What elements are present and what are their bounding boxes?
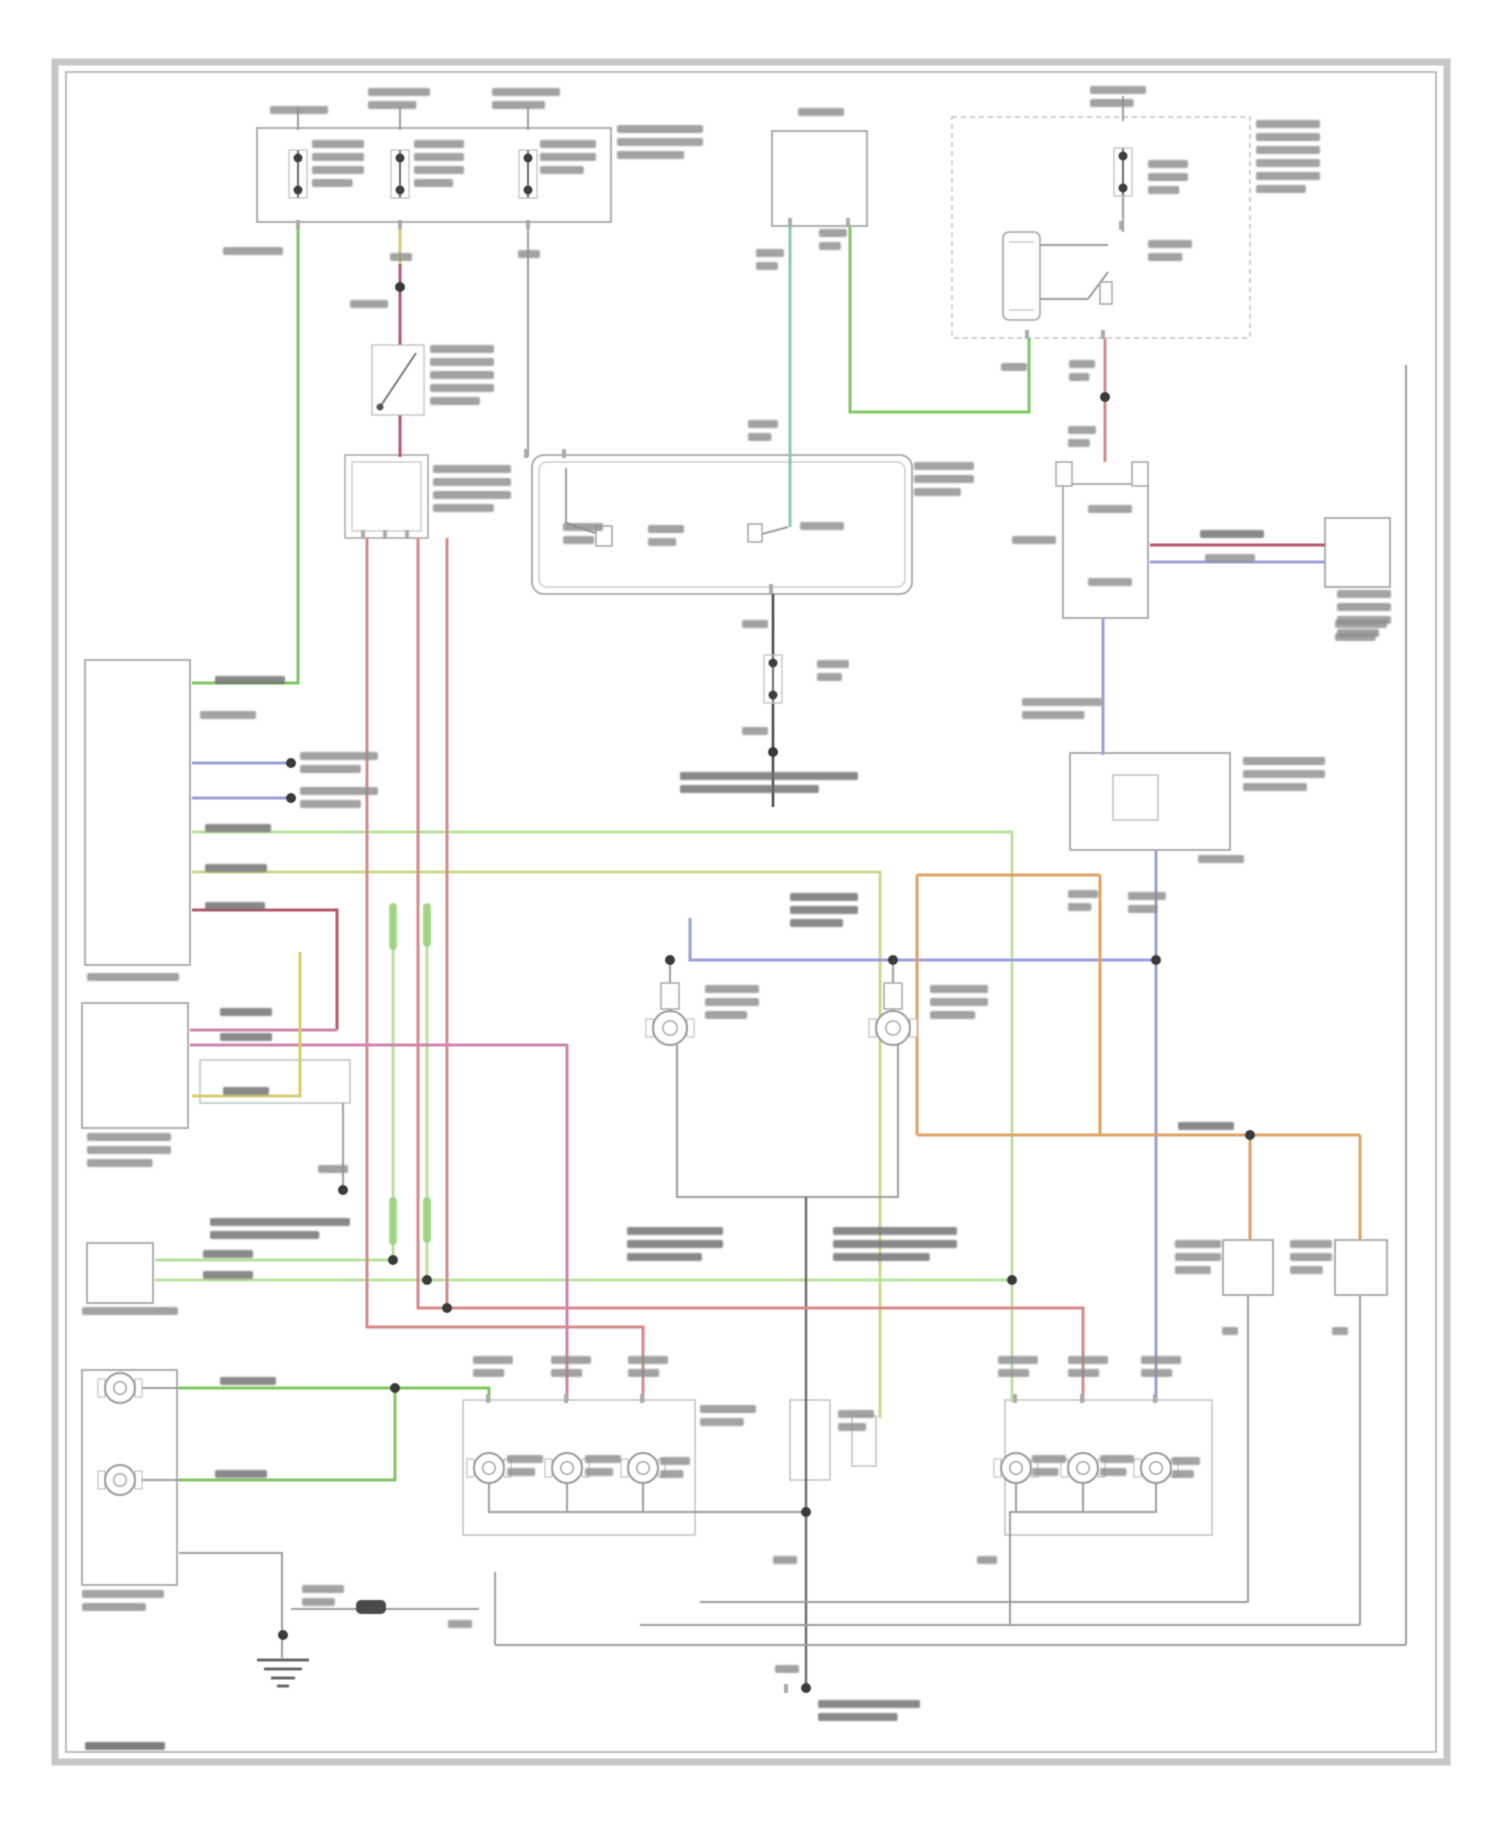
label-stub-fuse3-side-label — [540, 166, 584, 174]
label-stub-conn-text — [210, 1231, 319, 1239]
label-stub-license2-label — [930, 1011, 975, 1019]
label-stub-blue-down-label — [1022, 711, 1084, 719]
label-stub-fuse1-side-label — [312, 140, 364, 148]
label-stub-fuse2-side-label — [414, 140, 464, 148]
junction-dot — [1245, 1130, 1255, 1140]
label-stub-module-caption — [87, 973, 179, 981]
label-stub-license2-caption — [833, 1240, 957, 1248]
label-stub-blue1-label — [300, 752, 378, 760]
label-stub-rl-lamp1-label — [507, 1468, 535, 1476]
front-lamp-2-bulb-icon — [105, 1465, 135, 1495]
label-stub-maroon-label — [205, 902, 265, 910]
connector-box-below-switch — [345, 455, 428, 538]
label-stub-fuse3-top-label — [492, 88, 560, 96]
label-stub-bus-label — [448, 1620, 472, 1628]
front-lamp-2-tab — [135, 1471, 142, 1489]
label-stub-green-wire-label — [819, 242, 841, 250]
fuse-4-terminal-dot — [1119, 152, 1128, 161]
label-stub-righttall-label — [1335, 633, 1376, 641]
label-stub-license1-caption — [627, 1253, 702, 1261]
relay-coil-symbol — [1003, 232, 1040, 320]
fuse-3-terminal-dot — [524, 154, 533, 163]
label-stub-rr-wire3-label — [1141, 1369, 1172, 1377]
junction-dot — [665, 955, 675, 965]
label-stub-license1-label — [705, 1011, 747, 1019]
label-stub-license1-caption — [627, 1240, 723, 1248]
label-stub-rl-wire2-label — [551, 1356, 591, 1364]
label-stub-license2-caption — [833, 1253, 930, 1261]
green-sleeve-capsule — [389, 903, 397, 950]
junction-dot — [801, 1683, 811, 1693]
label-stub-switch2-label — [800, 522, 844, 530]
label-stub-orange-label-1 — [1068, 903, 1091, 911]
junction-dot — [286, 758, 296, 768]
module-inner-glyph — [1113, 775, 1158, 820]
label-stub-pink1-label — [220, 1008, 272, 1016]
label-stub-green-wire-label — [819, 229, 847, 237]
label-stub-teal-mid-label — [748, 420, 778, 428]
label-stub-rl-lamp2-label — [585, 1455, 621, 1463]
label-stub-switch1-label-a — [563, 523, 603, 531]
junction-dot — [286, 793, 296, 803]
label-stub-center-conn-label — [700, 1418, 744, 1426]
fuse-center-terminal-dot — [769, 691, 778, 700]
label-stub-junction-text — [680, 772, 858, 780]
label-stub-ignition-switch-label — [430, 384, 494, 392]
label-stub-rr-lamp3-label — [1172, 1470, 1194, 1478]
label-stub-marker2-tick — [1332, 1327, 1348, 1335]
label-stub-ground-text — [818, 1713, 898, 1721]
label-stub-dashedbox-right-label — [1256, 133, 1320, 141]
label-stub-gnd-vert-label-1 — [773, 1556, 797, 1564]
label-stub-fuse2-top-label — [368, 88, 430, 96]
fuse-1-terminal-dot — [294, 186, 303, 195]
label-stub-farright-caption — [1337, 590, 1391, 598]
label-stub-dashedbox-top-label — [1090, 86, 1146, 94]
rear-left-lamp-3-tab — [621, 1459, 628, 1477]
label-stub-rl-lamp1-label — [507, 1455, 543, 1463]
connector-tick — [784, 1684, 788, 1693]
connector-tick — [398, 220, 402, 229]
label-stub-red-stub-label-2 — [1068, 426, 1096, 434]
label-stub-center-conn-label — [700, 1405, 756, 1413]
label-stub-marker2-label — [1290, 1253, 1332, 1261]
label-stub-center-small-label — [838, 1423, 866, 1431]
label-stub-rl-lamp3-label — [660, 1470, 683, 1478]
label-stub-relay-coil-label — [1148, 240, 1192, 248]
marker-lamp-box-1 — [1223, 1240, 1273, 1295]
junction-dot — [888, 955, 898, 965]
label-stub-dashedbox-right-label — [1256, 159, 1320, 167]
label-stub-ignition-switch-label — [430, 345, 494, 353]
label-stub-box-right-mid-label — [914, 488, 961, 496]
label-stub-combo-switch-label — [433, 478, 511, 486]
label-stub-block-caption — [790, 919, 843, 927]
label-stub-fuse4-label — [1148, 160, 1188, 168]
label-stub-relay-coil-label — [1148, 253, 1182, 261]
label-stub-fusebox-right-label — [617, 151, 684, 159]
junction-dot — [395, 282, 405, 292]
label-stub-fuse3-top-label — [492, 101, 545, 109]
rear-right-lamp-2-bulb-icon — [1068, 1453, 1098, 1483]
label-stub-green-long-label — [205, 824, 271, 832]
rear-right-lamp-1-bulb-icon — [1001, 1453, 1031, 1483]
label-stub-rl-wire3-label — [628, 1356, 668, 1364]
inline-connector-blob — [356, 1600, 386, 1614]
rear-left-lamp-2-tab — [545, 1459, 552, 1477]
label-stub-license2-caption — [833, 1227, 957, 1235]
footer-caption-stub — [85, 1742, 165, 1750]
label-stub-module2-caption — [87, 1159, 153, 1167]
connector-tick — [1013, 1394, 1017, 1403]
label-stub-conn-text — [210, 1218, 350, 1226]
label-stub-rr-lamp3-label — [1172, 1457, 1200, 1465]
junction-dot — [388, 1255, 398, 1265]
label-stub-gnd-chain-label — [302, 1585, 344, 1593]
label-stub-rr-wire2-label — [1068, 1356, 1108, 1364]
label-stub-block-caption — [790, 893, 858, 901]
label-stub-stub2-label — [200, 711, 256, 719]
connector-tick — [524, 449, 528, 458]
connector-tick — [361, 530, 365, 539]
label-stub-centerfuse-top-label — [742, 620, 768, 628]
label-stub-fuse2-side-label — [414, 153, 464, 161]
connector-tick — [1101, 330, 1105, 339]
label-stub-blue-below-label — [1128, 905, 1158, 913]
label-stub-dashedbox-top-label — [1090, 99, 1134, 107]
label-stub-combo-switch-label — [433, 504, 494, 512]
label-stub-ground-text — [818, 1700, 920, 1708]
label-stub-yellowgreen-label — [205, 864, 267, 872]
label-stub-centerfuse-label — [817, 673, 842, 681]
connector-tick — [564, 1394, 568, 1403]
label-stub-fuse1-side-label — [312, 166, 364, 174]
rear-right-lamp-3-tab — [1134, 1459, 1141, 1477]
label-stub-orange-label-2 — [1178, 1122, 1234, 1130]
label-stub-yellow-label — [223, 1087, 269, 1095]
label-stub-ignition-switch-label — [430, 397, 480, 405]
license-lamp-1-bulb-icon — [653, 1011, 687, 1045]
license-lamp-2-tab — [869, 1019, 876, 1037]
label-stub-green-stub-label — [1001, 363, 1027, 371]
dashed-box-top-right — [952, 117, 1250, 338]
label-stub-box-right-mid-label — [914, 462, 974, 470]
label-stub-blue2-label — [300, 800, 361, 808]
fuse-2-terminal-dot — [396, 186, 405, 195]
connector-pin — [748, 524, 762, 542]
label-stub-rl-wire1-label — [473, 1356, 513, 1364]
label-stub-rl-wire1-label — [473, 1369, 504, 1377]
connector-tick — [640, 1394, 644, 1403]
label-stub-red-stub-label-1 — [1069, 360, 1095, 368]
label-stub-rr-wire1-label — [998, 1369, 1029, 1377]
label-stub-rr-lamp1-label — [1032, 1468, 1059, 1476]
connector-tick — [383, 530, 387, 539]
connector-tick — [296, 220, 300, 229]
label-stub-frontbox-caption — [82, 1603, 146, 1611]
junction-dot — [422, 1275, 432, 1285]
label-stub-blue1-label — [300, 765, 361, 773]
label-stub-right-module-label — [1243, 770, 1325, 778]
fuse-2-terminal-dot — [396, 154, 405, 163]
junction-dot — [1007, 1275, 1017, 1285]
front-lamp-1-tab — [135, 1379, 142, 1397]
label-stub-dashedbox-right-label — [1256, 185, 1306, 193]
fuse-1-terminal-dot — [294, 154, 303, 163]
rear-left-lamp-1-tab — [467, 1459, 474, 1477]
label-stub-fuse1-side-label — [312, 179, 353, 187]
label-stub-combo-switch-label — [433, 491, 511, 499]
label-stub-marker2-label — [1290, 1240, 1332, 1248]
label-stub-fusebox-right-label — [617, 138, 703, 146]
connector-tick — [846, 218, 850, 227]
fuse-4-terminal-dot — [1119, 184, 1128, 193]
label-stub-frontlamp-green1-label — [220, 1377, 276, 1385]
front-lamp-1-tab — [98, 1379, 105, 1397]
label-stub-ignition-switch-label — [430, 358, 494, 366]
license-lamp-2-connector-pin — [884, 983, 902, 1009]
license-lamp-1-tab — [646, 1019, 653, 1037]
connector-tick — [788, 218, 792, 227]
wiring-diagram-canvas — [0, 0, 1500, 1828]
junction-dot — [442, 1303, 452, 1313]
label-stub-red-stub-label-1 — [1069, 373, 1089, 381]
label-stub-dashedbox-right-label — [1256, 120, 1320, 128]
label-stub-orange-label-1 — [1068, 890, 1098, 898]
label-stub-rl-wire3-label — [628, 1369, 659, 1377]
rear-right-lamp-3-bulb-icon — [1141, 1453, 1171, 1483]
license-lamp-2-bulb-icon — [876, 1011, 910, 1045]
label-stub-frontlamp-green2-label — [215, 1470, 267, 1478]
label-stub-rr-lamp2-label — [1100, 1468, 1127, 1476]
label-stub-fuse3-side-label — [540, 140, 596, 148]
label-stub-fuse1-side-label — [312, 153, 364, 161]
junction-dot — [801, 1507, 811, 1517]
label-stub-switch1-label-a — [563, 536, 594, 544]
label-stub-pink2-label — [220, 1033, 272, 1041]
front-lamp-2-tab — [98, 1471, 105, 1489]
label-stub-module2-caption — [87, 1146, 171, 1154]
label-stub-block-caption — [790, 906, 858, 914]
label-stub-red-right-label — [1200, 530, 1264, 538]
label-stub-rr-lamp1-label — [1032, 1455, 1066, 1463]
label-stub-relay-inner-label-2 — [1088, 578, 1132, 586]
label-stub-farright-caption — [1337, 603, 1391, 611]
label-stub-box-right-mid-label — [914, 475, 974, 483]
left-control-module — [85, 660, 190, 965]
label-stub-rl-lamp3-label — [660, 1457, 690, 1465]
label-stub-lg1-label — [203, 1250, 253, 1258]
fuse-center-terminal-dot — [769, 659, 778, 668]
connector-tick — [769, 584, 773, 593]
junction-dot — [338, 1185, 348, 1195]
label-stub-gray-stub-label — [1198, 855, 1244, 863]
left-module-2 — [82, 1003, 188, 1128]
label-stub-relay-module-label — [798, 108, 844, 116]
label-stub-rr-lamp2-label — [1100, 1455, 1134, 1463]
connector-pin — [1100, 282, 1112, 304]
label-stub-fusebox-right-label — [617, 125, 703, 133]
rear-left-lamp-2-bulb-icon — [552, 1453, 582, 1483]
junction-dot — [768, 747, 778, 757]
label-stub-dashedbox-right-label — [1256, 172, 1320, 180]
connector-tick — [562, 449, 566, 458]
rear-left-lamp-3-bulb-icon — [628, 1453, 658, 1483]
connector-tick — [526, 220, 530, 229]
label-stub-conn-gray-label — [318, 1165, 348, 1173]
fuse-3-terminal-dot — [524, 186, 533, 195]
label-stub-rl-wire2-label — [551, 1369, 582, 1377]
label-stub-centerfuse-label — [817, 660, 849, 668]
junction-dot — [278, 1630, 288, 1640]
label-stub-license1-label — [705, 985, 759, 993]
license-lamp-1-connector-pin — [661, 983, 679, 1009]
rear-left-lamp-1-bulb-icon — [474, 1453, 504, 1483]
connector-pin — [1056, 462, 1072, 486]
connector-tick — [1025, 330, 1029, 339]
label-stub-rr-wire1-label — [998, 1356, 1038, 1364]
label-stub-junction-text — [680, 785, 819, 793]
label-stub-rr-wire2-label — [1068, 1369, 1099, 1377]
switch-contact-dot — [377, 404, 384, 411]
label-stub-fuse1-top-label — [270, 106, 328, 114]
label-stub-right-module-label — [1243, 757, 1325, 765]
license-lamp-1-tab — [687, 1019, 694, 1037]
right-relay-box — [1063, 484, 1148, 618]
connector-pin — [1132, 462, 1148, 486]
junction-dot — [1100, 392, 1110, 402]
connector-tick — [405, 530, 409, 539]
label-stub-marker1-label — [1175, 1240, 1221, 1248]
label-stub-tick-label-2 — [518, 250, 540, 258]
label-stub-license2-label — [930, 998, 988, 1006]
connector-tick — [1153, 1394, 1157, 1403]
label-stub-fuse2-side-label — [414, 179, 453, 187]
label-stub-blue-down-label — [1022, 698, 1102, 706]
label-stub-marker2-label — [1290, 1266, 1323, 1274]
relay-module-top-center — [772, 131, 867, 226]
connector-tick — [1119, 221, 1123, 230]
green-sleeve-capsule — [389, 1197, 397, 1245]
label-stub-blue-below-label — [1128, 892, 1166, 900]
label-stub-relay-inner-label-1 — [1088, 505, 1132, 513]
label-stub-centerfuse-bot-label — [742, 727, 768, 735]
label-stub-marker1-label — [1175, 1266, 1211, 1274]
label-stub-center-small-label — [838, 1410, 874, 1418]
label-stub-fuse4-label — [1148, 186, 1179, 194]
label-stub-tick-label-1 — [390, 253, 412, 261]
label-stub-license1-label — [705, 998, 759, 1006]
connector-tick — [1080, 1394, 1084, 1403]
label-stub-gnd-chain-label — [302, 1598, 335, 1606]
label-stub-rr-wire3-label — [1141, 1356, 1181, 1364]
front-lamp-1-bulb-icon — [105, 1373, 135, 1403]
green-sleeve-capsule — [423, 1197, 431, 1243]
marker-lamp-box-2 — [1335, 1240, 1387, 1295]
connector-tick — [486, 1394, 490, 1403]
label-stub-switch1-label-b — [648, 525, 684, 533]
label-stub-right-module-label — [1243, 783, 1307, 791]
label-stub-teal-mid-label — [748, 433, 771, 441]
label-stub-fuse2-side-label — [414, 166, 464, 174]
label-stub-teal-wire-label — [756, 262, 778, 270]
center-connector-box — [790, 1400, 830, 1480]
label-stub-relay-right-label — [1012, 536, 1056, 544]
far-right-box — [1325, 518, 1390, 587]
left-relay-box — [87, 1243, 153, 1303]
label-stub-dashedbox-right-label — [1256, 146, 1320, 154]
label-stub-green1-on-wire-label — [215, 676, 285, 684]
label-stub-relaybox-caption — [82, 1307, 178, 1315]
label-stub-teal-wire-label — [756, 249, 784, 257]
label-stub-combo-switch-label — [433, 465, 511, 473]
label-stub-righttall-label — [1335, 620, 1387, 628]
label-stub-fuse4-label — [1148, 173, 1188, 181]
label-stub-fuse2-top-label — [368, 101, 416, 109]
label-stub-ignition-switch-label — [430, 371, 494, 379]
label-stub-below-fusebox-label — [223, 247, 283, 255]
label-stub-lg2-label — [203, 1271, 253, 1279]
scanned-wiring-diagram-page — [0, 0, 1500, 1828]
label-stub-frontbox-caption — [82, 1590, 164, 1598]
label-stub-blue-right-label — [1205, 554, 1255, 562]
label-stub-rightgnd-label — [977, 1556, 997, 1564]
label-stub-fuse3-side-label — [540, 153, 596, 161]
label-stub-marker1-label — [1175, 1253, 1221, 1261]
label-stub-marker1-tick — [1222, 1327, 1238, 1335]
label-stub-license2-label — [930, 985, 988, 993]
green-sleeve-capsule — [423, 903, 431, 947]
label-stub-wire2-label — [350, 300, 388, 308]
label-stub-rl-lamp2-label — [585, 1468, 613, 1476]
label-stub-red-stub-label-2 — [1068, 439, 1090, 447]
label-stub-license1-caption — [627, 1227, 723, 1235]
label-stub-blue2-label — [300, 787, 378, 795]
junction-dot — [1151, 955, 1161, 965]
junction-dot — [390, 1383, 400, 1393]
label-stub-switch1-label-b — [648, 538, 676, 546]
license-lamp-2-tab — [910, 1019, 917, 1037]
label-stub-gnd-vert-label-2 — [775, 1665, 799, 1673]
label-stub-module2-caption — [87, 1133, 171, 1141]
rear-right-lamp-1-tab — [994, 1459, 1001, 1477]
